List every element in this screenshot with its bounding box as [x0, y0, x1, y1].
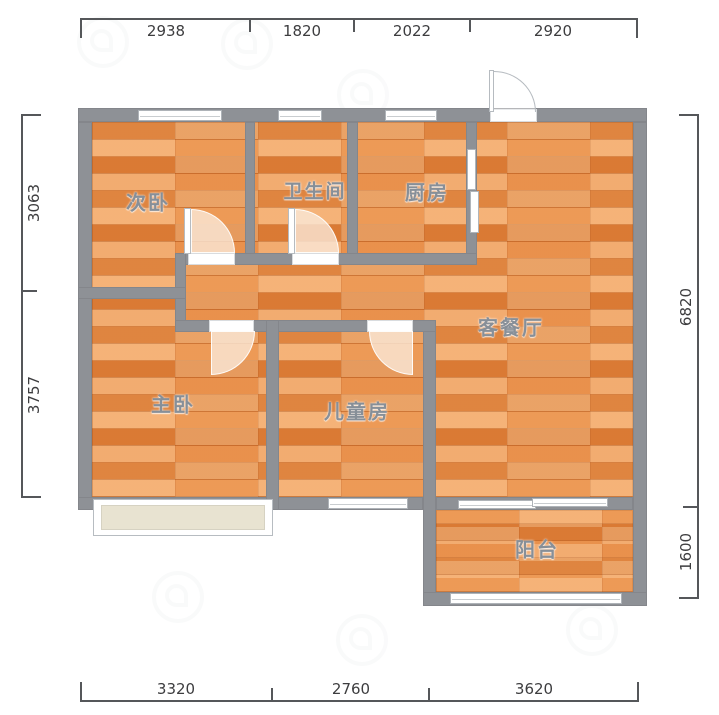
dim-tick — [80, 18, 82, 38]
dim-tick — [21, 114, 41, 116]
room-label-living: 客餐厅 — [478, 312, 544, 341]
window-balcony-door-left — [458, 500, 536, 509]
dim-tick — [21, 290, 37, 292]
entry-door-leaf — [489, 70, 494, 112]
dim-tick — [21, 496, 41, 498]
dim-tick — [80, 682, 82, 702]
room-label-bedroom2: 次卧 — [126, 187, 170, 216]
wall-bedroom2-bath — [245, 122, 255, 265]
dim-bottom-2: 2760 — [332, 680, 370, 698]
bay-window-sill — [101, 505, 265, 530]
dim-top-2: 1820 — [283, 22, 321, 40]
dim-tick — [679, 597, 699, 599]
window-kitchen — [385, 110, 437, 121]
wall-master-child — [266, 320, 279, 510]
room-label-child: 儿童房 — [324, 396, 390, 425]
dim-tick — [683, 506, 699, 508]
bathroom-door-leaf — [288, 208, 295, 254]
wall-child-balcony-left — [423, 320, 436, 606]
dim-tick — [679, 114, 699, 116]
room-label-bathroom: 卫生间 — [283, 177, 346, 204]
wall-bath-kitchen — [347, 122, 358, 265]
dim-left-1: 3063 — [25, 184, 43, 222]
wall-right — [633, 122, 647, 606]
dim-tick — [249, 18, 251, 32]
dim-right-1: 6820 — [677, 288, 695, 326]
dim-top-4: 2920 — [534, 22, 572, 40]
dim-line-bottom — [81, 700, 639, 702]
dim-tick — [636, 18, 638, 38]
dim-tick — [271, 688, 273, 702]
dim-tick — [637, 682, 639, 702]
dim-line-left — [21, 114, 23, 498]
room-label-kitchen: 厨房 — [405, 177, 449, 206]
dim-line-right — [697, 114, 699, 599]
watermark — [336, 614, 388, 666]
watermark — [566, 604, 618, 656]
window-balcony — [450, 593, 622, 604]
dim-right-2: 1600 — [677, 533, 695, 571]
dim-bottom-1: 3320 — [157, 680, 195, 698]
window-bedroom2 — [138, 110, 222, 121]
wall-left — [78, 122, 92, 510]
bedroom2-door-leaf — [184, 208, 191, 254]
room-label-balcony: 阳台 — [515, 534, 559, 563]
entry-door-arc — [494, 71, 536, 112]
dim-top-1: 2938 — [147, 22, 185, 40]
window-balcony-door-right — [532, 498, 608, 507]
dim-tick — [353, 18, 355, 32]
watermark — [152, 571, 204, 623]
floor-main — [92, 122, 633, 497]
floorplan-canvas: 次卧 卫生间 厨房 客餐厅 主卧 儿童房 阳台 2938 1820 2022 2… — [0, 0, 719, 715]
watermark — [221, 18, 273, 70]
wall-bedroom2-master — [78, 287, 186, 299]
dim-top-3: 2022 — [393, 22, 431, 40]
window-bathroom — [278, 110, 322, 121]
bathroom-door-opening — [292, 253, 339, 265]
bedroom2-door-opening — [188, 253, 235, 265]
kitchen-slider-pane — [467, 149, 476, 190]
kitchen-slider-pane — [470, 191, 479, 233]
dim-bottom-3: 3620 — [515, 680, 553, 698]
dim-tick — [469, 18, 471, 32]
dim-line-top — [81, 18, 638, 20]
window-child-room — [328, 498, 408, 509]
watermark — [77, 16, 129, 68]
room-label-master: 主卧 — [151, 389, 195, 418]
dim-left-2: 3757 — [25, 376, 43, 414]
dim-tick — [428, 688, 430, 702]
